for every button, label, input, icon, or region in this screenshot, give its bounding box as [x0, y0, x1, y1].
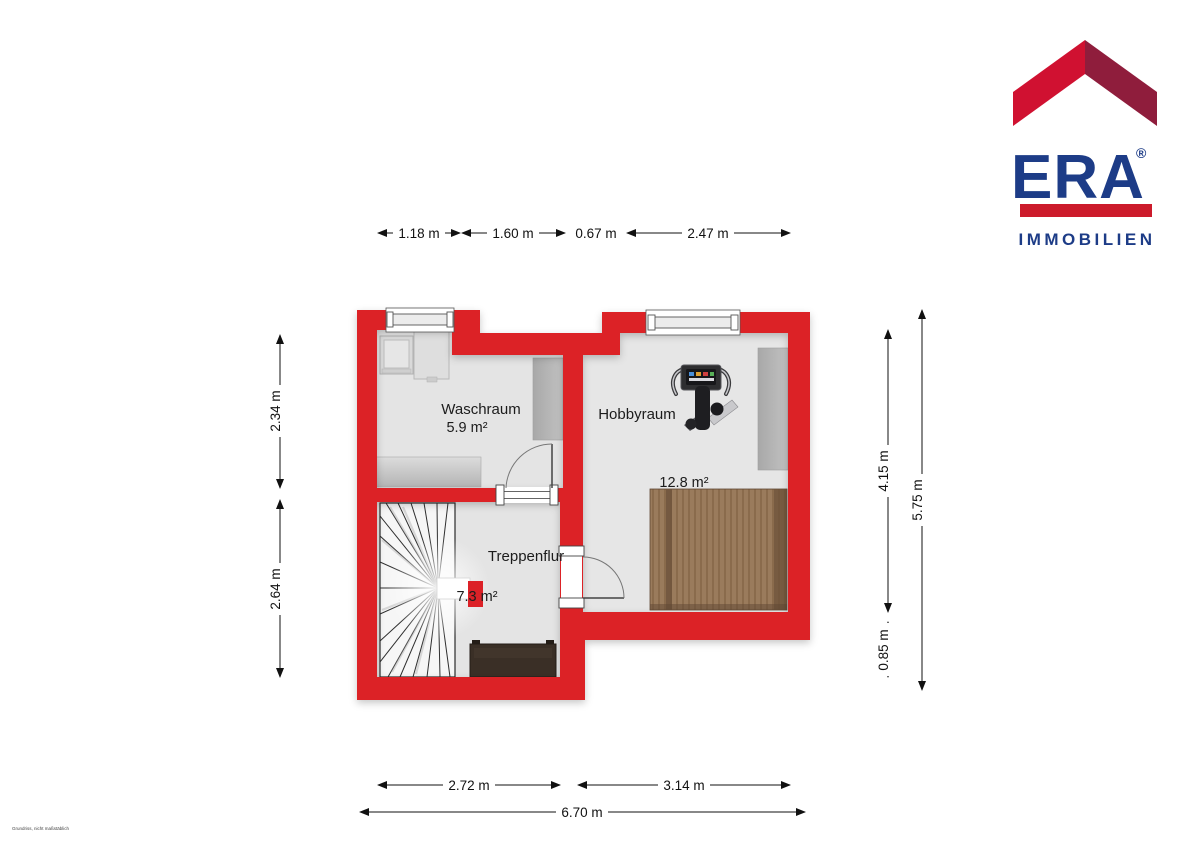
logo-subtitle: IMMOBILIEN	[1019, 230, 1156, 249]
logo-red-bar	[1020, 204, 1152, 217]
dryer-icon	[414, 331, 449, 382]
floor-plan-page: ERA ® IMMOBILIEN	[0, 0, 1200, 848]
waschraum-counter	[375, 457, 481, 487]
washing-machine-icon	[380, 336, 413, 374]
dim-left-1: 2.34 m	[268, 390, 283, 431]
wood-rug	[650, 489, 787, 610]
room-treppenflur-area: 7.3 m²	[456, 589, 497, 605]
watermark-text: Grundriss, nicht maßstäblich	[12, 826, 70, 831]
dim-bottom-3: 6.70 m	[561, 805, 602, 820]
hobbyraum-shelf	[758, 348, 788, 470]
waschraum-shelf	[533, 358, 563, 440]
dim-bottom-2: 3.14 m	[663, 778, 704, 793]
logo-roof-right	[1085, 40, 1157, 126]
dim-right-3: 5.75 m	[910, 479, 925, 520]
window-hobbyraum	[646, 310, 740, 335]
dim-top-3: 0.67 m	[575, 226, 616, 241]
window-waschraum	[386, 308, 454, 332]
room-hobbyraum-area: 12.8 m²	[659, 475, 708, 491]
dim-right-2: 0.85 m	[876, 629, 891, 670]
dim-left-2: 2.64 m	[268, 568, 283, 609]
room-waschraum-label: Waschraum	[441, 401, 520, 418]
bench	[470, 640, 556, 677]
dim-top-1: 1.18 m	[398, 226, 439, 241]
logo-roof-left	[1013, 40, 1085, 126]
room-treppenflur-label: Treppenflur	[488, 548, 564, 565]
room-waschraum-area: 5.9 m²	[446, 420, 487, 436]
dim-right-1: 4.15 m	[876, 450, 891, 491]
logo-wordmark: ERA	[1011, 143, 1145, 212]
era-logo: ERA ® IMMOBILIEN	[1011, 40, 1157, 249]
dim-bottom-1: 2.72 m	[448, 778, 489, 793]
room-hobbyraum-label: Hobbyraum	[598, 406, 676, 423]
floor-plan-canvas: ERA ® IMMOBILIEN	[0, 0, 1200, 848]
dim-top-4: 2.47 m	[687, 226, 728, 241]
logo-registered-mark: ®	[1136, 145, 1147, 161]
dim-top-2: 1.60 m	[492, 226, 533, 241]
